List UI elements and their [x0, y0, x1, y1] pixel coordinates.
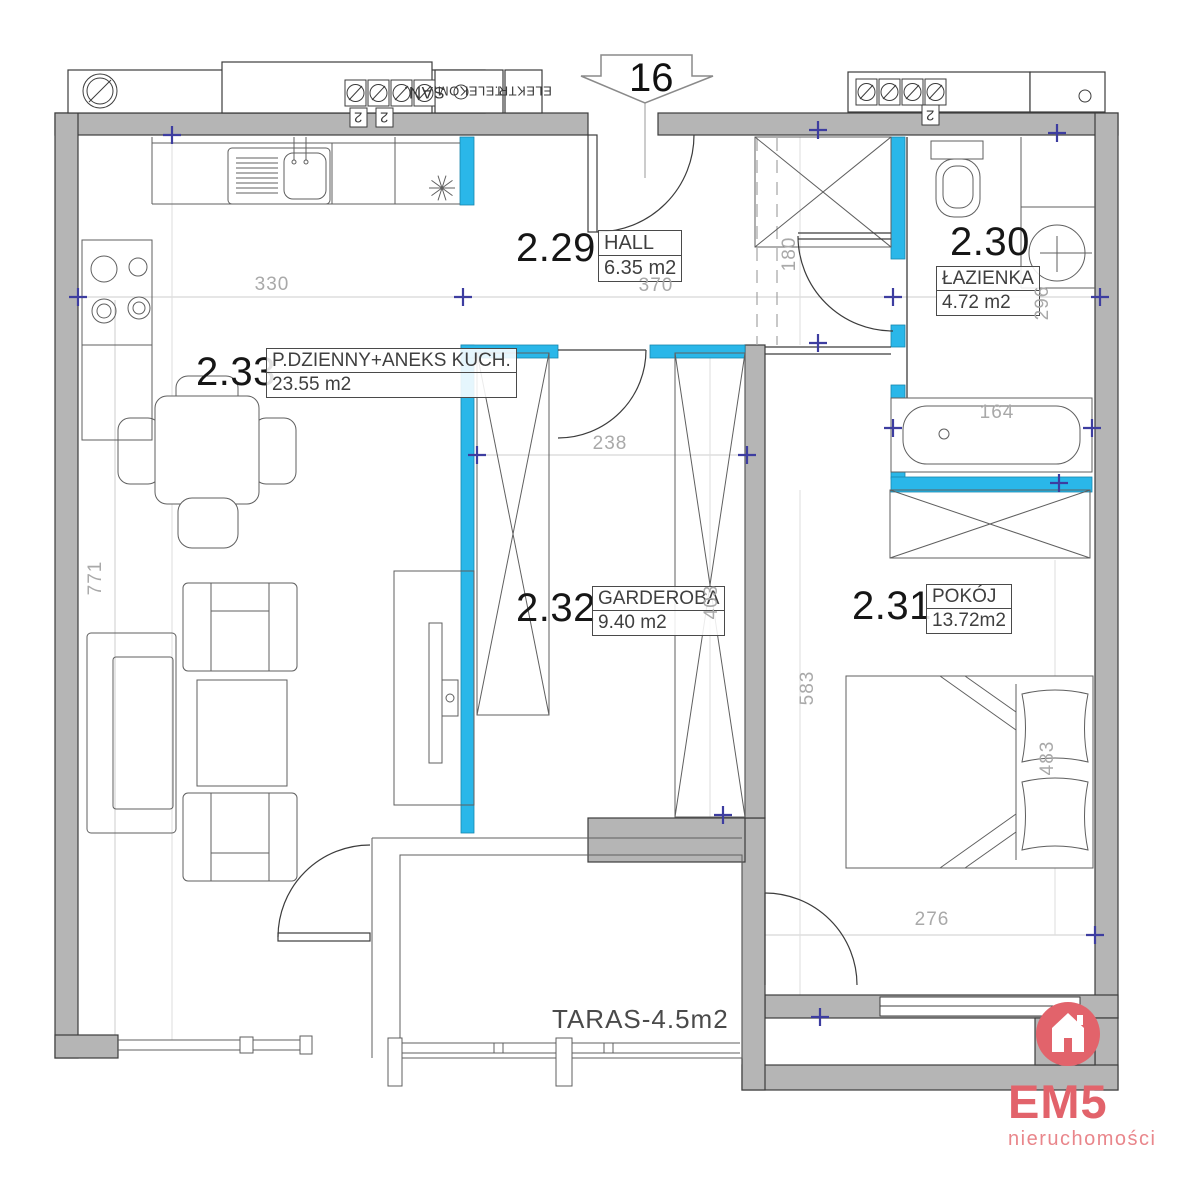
dashed-guides	[757, 138, 777, 345]
entrance-door	[588, 135, 694, 232]
meter-number-c: 2	[926, 107, 935, 124]
room-name-hall: HALL	[599, 231, 681, 256]
wardrobe-garderoba-left	[477, 353, 549, 715]
dim-296: 296	[1032, 286, 1054, 321]
bathroom-door	[798, 233, 893, 331]
floorplan-page: 16 2.29 HALL 6.35 m2 2.30 ŁAZIENKA 4.72 …	[0, 0, 1184, 1200]
room-label-living: P.DZIENNY+ANEKS KUCH. 23.55 m2	[266, 348, 517, 398]
dim-164: 164	[980, 402, 1015, 424]
dim-238: 238	[593, 433, 628, 455]
dim-403: 403	[701, 585, 723, 620]
dim-370: 370	[639, 275, 674, 297]
meter-number-a: 2	[354, 109, 363, 126]
garderoba-door	[558, 350, 646, 438]
armchair-top	[183, 583, 297, 671]
room-area-living: 23.55 m2	[267, 373, 516, 396]
room-name-bathroom: ŁAZIENKA	[937, 267, 1039, 291]
riser-label-elektr: ELEKTR.	[494, 84, 552, 99]
brand-name: EM5	[1008, 1078, 1108, 1125]
armchair-bottom	[183, 793, 297, 881]
room-number-hall: 2.29	[516, 226, 596, 271]
kitchen-sink	[228, 137, 330, 204]
dim-180: 180	[779, 237, 801, 272]
room-area-bathroom: 4.72 m2	[937, 291, 1039, 314]
toilet	[931, 141, 983, 217]
riser-label-telekom: TELEKOM.	[433, 84, 503, 99]
brand-tagline: nieruchomości	[1008, 1128, 1156, 1151]
coffee-table	[197, 680, 287, 786]
bedroom-door	[765, 893, 857, 985]
living-window	[118, 1036, 312, 1054]
apartment-number: 16	[629, 56, 674, 101]
dim-771: 771	[85, 561, 107, 596]
room-label-bedroom: POKÓJ 13.72m2	[926, 584, 1012, 634]
brand-logo-icon	[1036, 1002, 1100, 1066]
room-name-bedroom: POKÓJ	[927, 585, 1011, 609]
wardrobe-bedroom	[890, 490, 1090, 558]
dim-276: 276	[915, 909, 950, 931]
dining-table	[118, 376, 296, 548]
wardrobe-hall	[755, 137, 891, 247]
room-label-bathroom: ŁAZIENKA 4.72 m2	[936, 266, 1040, 316]
meter-number-b: 2	[380, 109, 389, 126]
dim-483: 483	[1037, 741, 1059, 776]
room-area-bedroom: 13.72m2	[927, 609, 1011, 632]
dim-330: 330	[255, 274, 290, 296]
terrace-door	[278, 845, 370, 941]
room-name-living: P.DZIENNY+ANEKS KUCH.	[267, 349, 516, 373]
room-number-bathroom: 2.30	[950, 220, 1030, 265]
terrace-label: TARAS-4.5m2	[552, 1004, 729, 1035]
kitchen-hob	[82, 240, 152, 440]
room-number-garderoba: 2.32	[516, 586, 596, 631]
room-label-hall: HALL 6.35 m2	[598, 230, 682, 282]
sofa	[87, 633, 176, 833]
room-number-living: 2.33	[196, 350, 276, 395]
dim-583: 583	[797, 671, 819, 706]
room-number-bedroom: 2.31	[852, 584, 932, 629]
terrace	[372, 838, 742, 1086]
light-point-icon	[429, 176, 455, 201]
